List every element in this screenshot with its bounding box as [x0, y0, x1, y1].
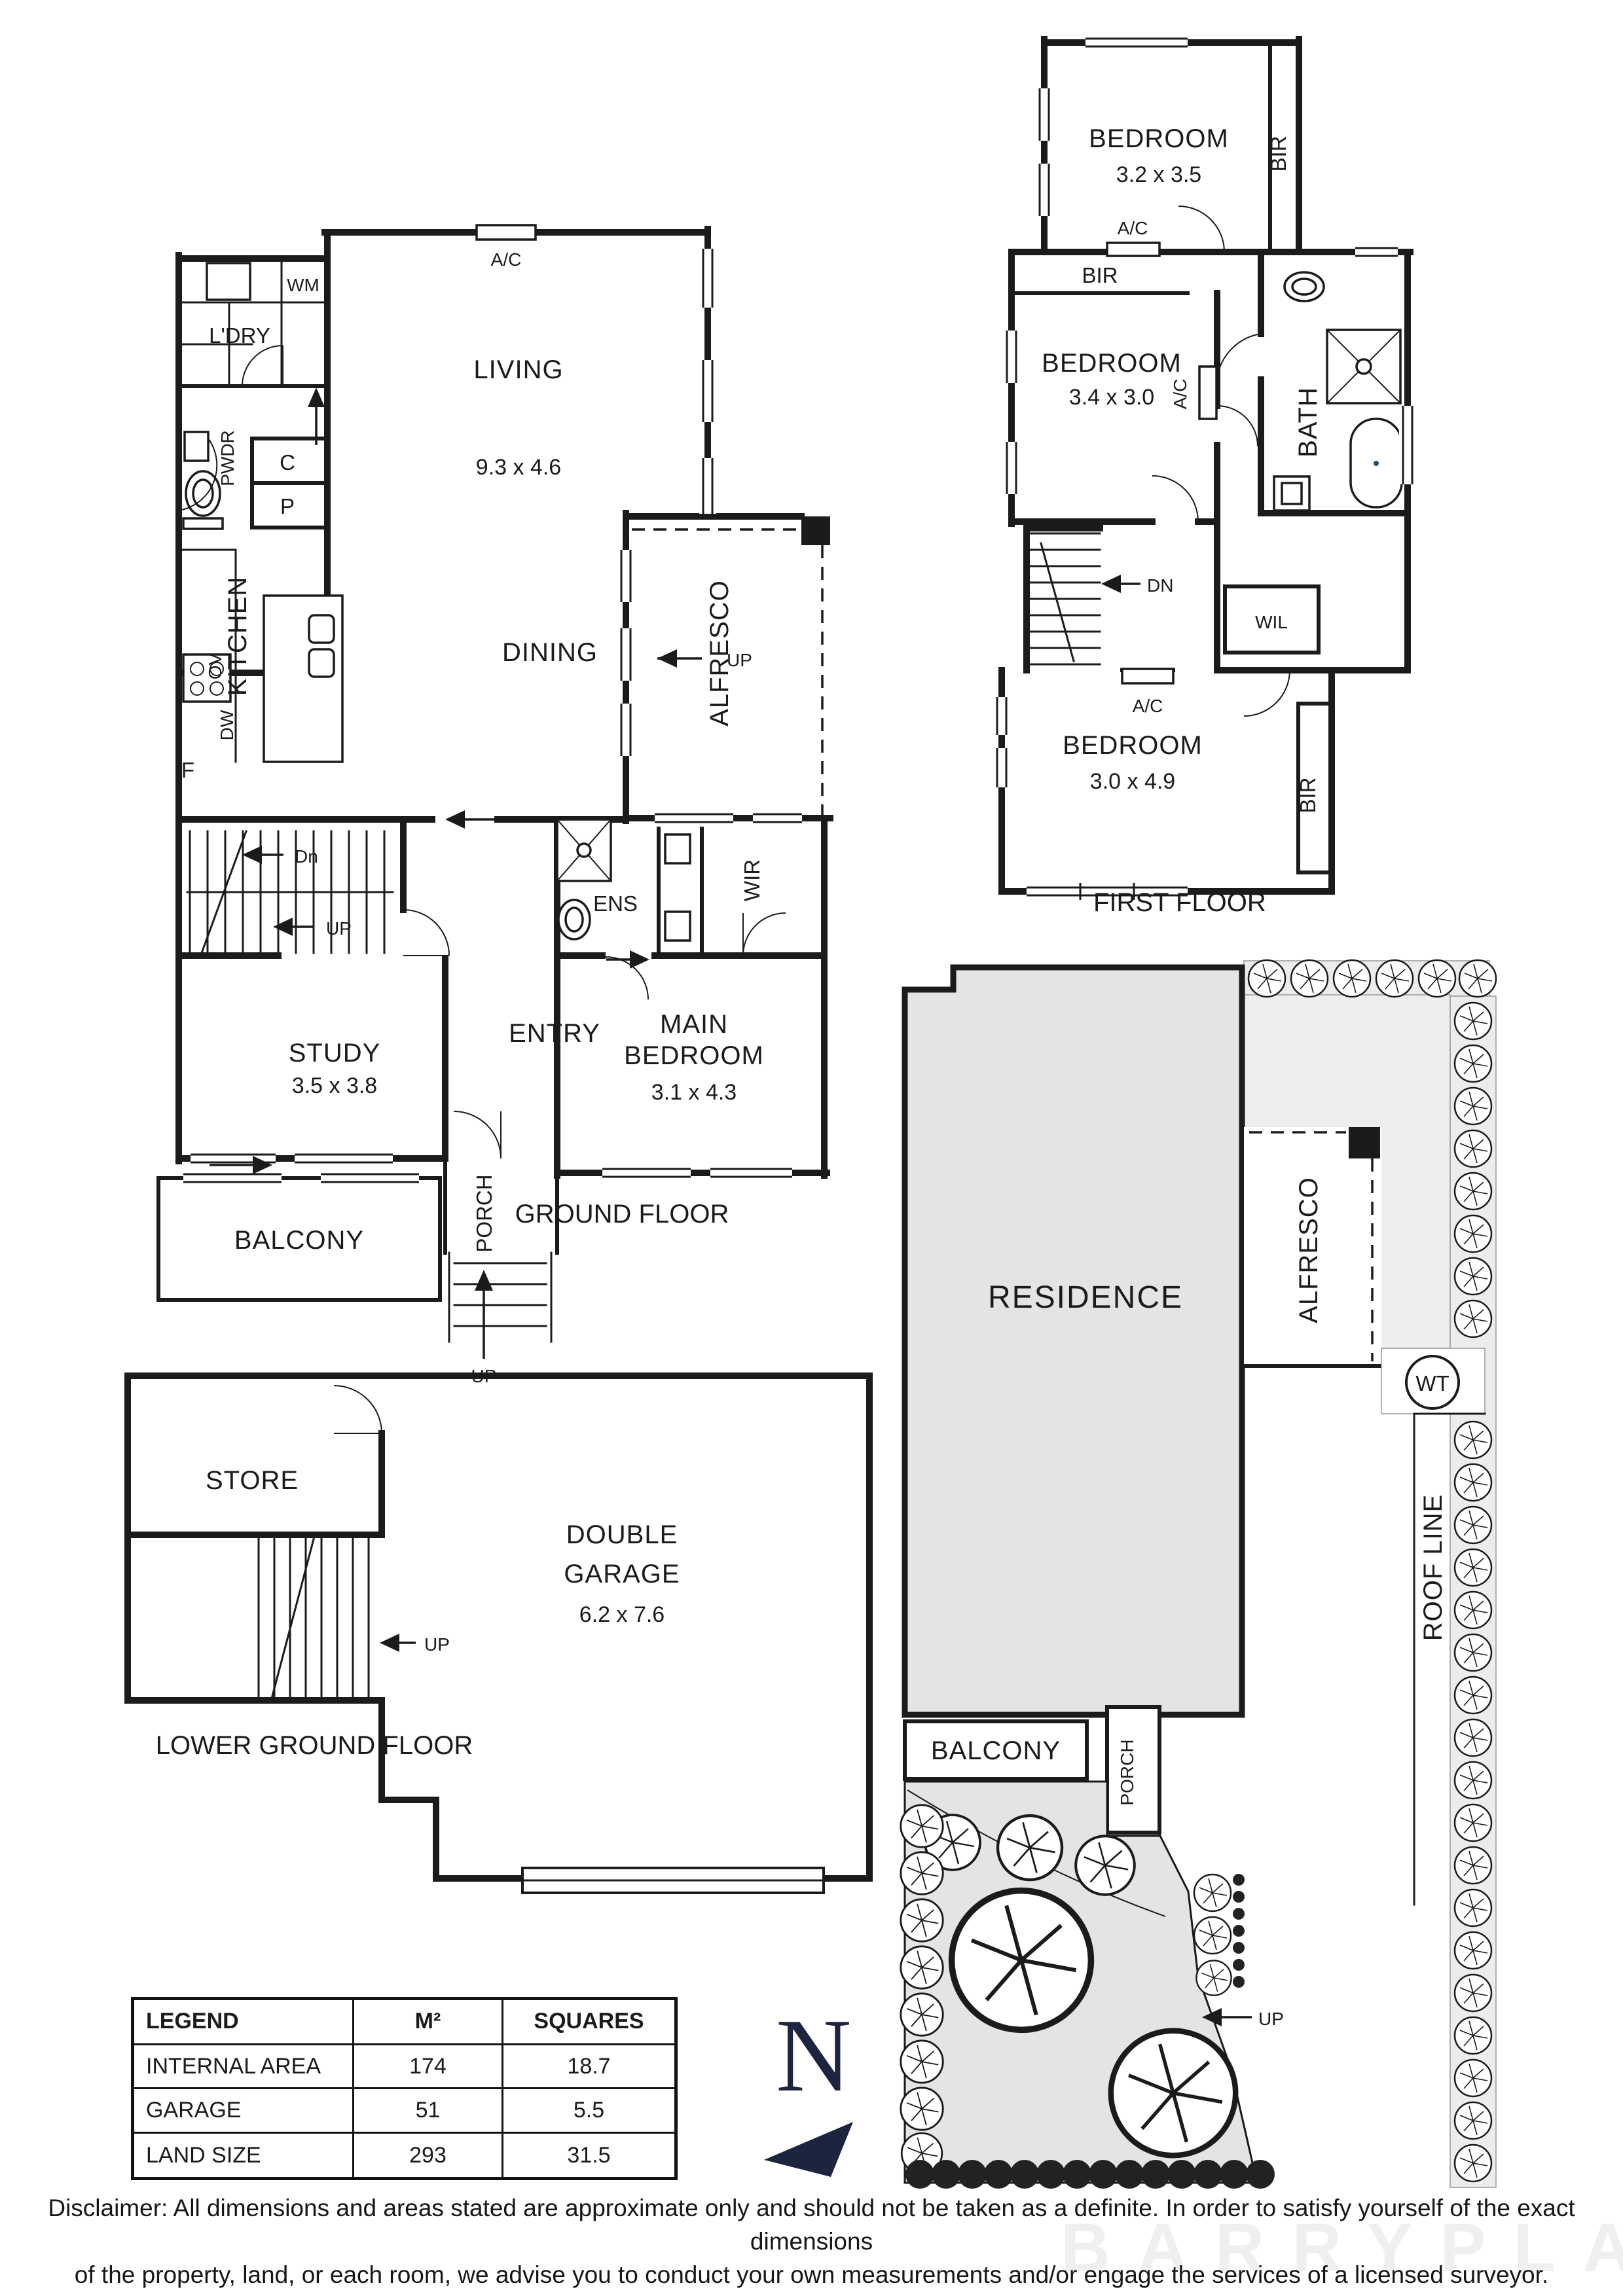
bir-label: BIR	[1082, 263, 1118, 287]
lower-ground-arrows	[380, 1634, 416, 1652]
main-bedroom-label2: BEDROOM	[624, 1041, 764, 1070]
study-label: STUDY	[289, 1039, 381, 1067]
legend-header-name: LEGEND	[133, 1999, 354, 2045]
store-label: STORE	[206, 1466, 299, 1495]
first-floor-arrows	[1101, 575, 1140, 593]
vanity-icon	[665, 912, 690, 941]
first-floor-title: FIRST FLOOR	[1093, 888, 1266, 917]
legend-cell: 51	[354, 2089, 503, 2133]
up-label: UP	[326, 918, 352, 939]
wt-label: WT	[1415, 1371, 1449, 1395]
dining-label: DINING	[502, 638, 598, 667]
dw-label: DW	[217, 709, 237, 740]
ov-label: OV	[205, 653, 225, 679]
bedroom1-dim: 3.2 x 3.5	[1116, 162, 1201, 187]
alfresco-corner-post	[801, 516, 830, 545]
bedroom2-dim: 3.4 x 3.0	[1069, 385, 1154, 410]
laundry-trough-icon	[207, 263, 250, 300]
ground-floor-title: GROUND FLOOR	[515, 1200, 729, 1229]
legend-cell: INTERNAL AREA	[133, 2044, 354, 2089]
wm-label: WM	[287, 275, 319, 295]
legend-cell: 18.7	[503, 2044, 676, 2089]
study-dim: 3.5 x 3.8	[292, 1073, 377, 1098]
legend-cell: GARAGE	[133, 2089, 354, 2133]
alfresco-up-label: UP	[727, 650, 752, 670]
ac-label: A/C	[1118, 218, 1148, 238]
lower-ground-stairs	[259, 1537, 369, 1698]
disclaimer-line1: Disclaimer: All dimensions and areas sta…	[0, 2191, 1623, 2258]
site-porch-label: PORCH	[1117, 1739, 1137, 1805]
p-label: P	[280, 494, 295, 518]
lower-ground-plan: STORE UP DOUBLE GARAGE 6.2 x 7.6 LOWER G…	[118, 1368, 884, 1918]
kitchen-fixtures	[179, 550, 342, 762]
dn-label: DN	[1147, 575, 1173, 596]
site-balcony-label: BALCONY	[931, 1736, 1061, 1765]
bedroom2-label: BEDROOM	[1042, 349, 1182, 378]
legend-cell: 293	[354, 2133, 503, 2179]
residence-label: RESIDENCE	[988, 1280, 1183, 1315]
legend-cell: 5.5	[503, 2089, 676, 2133]
legend-header-row: LEGEND M² SQUARES	[133, 1999, 676, 2045]
ground-floor-plan: WM L'DRY PWDR C P A/C LIVING 9.3 x 4.6 K…	[79, 92, 838, 1394]
legend-row-land: LAND SIZE 293 31.5	[133, 2133, 676, 2179]
ac-label: A/C	[1170, 379, 1190, 410]
main-bedroom-dim: 3.1 x 4.3	[651, 1080, 737, 1105]
legend-header-m2: M²	[354, 1999, 503, 2045]
vanity-icon	[665, 834, 690, 863]
bedroom1-label: BEDROOM	[1089, 124, 1229, 153]
living-label: LIVING	[473, 355, 563, 384]
disclaimer: Disclaimer: All dimensions and areas sta…	[0, 2191, 1623, 2296]
ens-label: ENS	[593, 891, 638, 916]
first-floor-doors	[1152, 206, 1290, 716]
residence-outline	[905, 967, 1242, 1715]
roof-line-label: ROOF LINE	[1419, 1494, 1448, 1641]
dn-label: Dn	[295, 846, 318, 867]
porch-steps	[449, 1253, 551, 1342]
ac-label: A/C	[491, 249, 522, 270]
legend-cell: 31.5	[503, 2133, 676, 2179]
ac-label: A/C	[1133, 696, 1163, 716]
site-plan: RESIDENCE ALFRESCO WT ROOF LINE BALCONY …	[890, 956, 1623, 2199]
bir-label: BIR	[1296, 777, 1320, 813]
lower-ground-walls	[128, 1376, 869, 1878]
disclaimer-line2: of the property, land, or each room, we …	[0, 2258, 1623, 2296]
ac-unit-icon	[1122, 669, 1173, 683]
north-arrow-icon	[761, 2119, 860, 2181]
ac-unit-icon	[1107, 243, 1159, 256]
legend-header-squares: SQUARES	[503, 1999, 676, 2045]
bir-label: BIR	[1266, 135, 1290, 171]
legend-cell: 174	[354, 2044, 503, 2089]
main-bedroom-label1: MAIN	[660, 1010, 728, 1039]
bath-label: BATH	[1294, 387, 1322, 457]
door-arc	[454, 1111, 501, 1158]
balcony-label: BALCONY	[234, 1226, 364, 1255]
garage-label2: GARAGE	[564, 1560, 680, 1588]
bath-fixtures	[1107, 243, 1402, 683]
bedroom3-dim: 3.0 x 4.9	[1090, 769, 1175, 794]
wil-label: WIL	[1255, 612, 1288, 632]
first-floor-plan: BEDROOM 3.2 x 3.5 BIR A/C BIR BEDROOM 3.…	[969, 26, 1467, 942]
ac-unit-icon	[477, 225, 536, 240]
floorplan-page: WM L'DRY PWDR C P A/C LIVING 9.3 x 4.6 K…	[0, 0, 1623, 2296]
garage-door	[522, 1868, 824, 1893]
entry-label: ENTRY	[509, 1019, 600, 1048]
ensuite-fixtures	[403, 819, 786, 1158]
bedroom3-label: BEDROOM	[1063, 731, 1203, 760]
ldry-label: L'DRY	[209, 323, 270, 348]
first-floor-stairs	[1027, 533, 1100, 664]
pwdr-label: PWDR	[217, 430, 238, 486]
lower-ground-title: LOWER GROUND FLOOR	[156, 1731, 473, 1760]
garage-dim: 6.2 x 7.6	[579, 1602, 665, 1627]
north-indicator: N	[776, 2003, 860, 2181]
legend-row-garage: GARAGE 51 5.5	[133, 2089, 676, 2133]
c-label: C	[280, 450, 295, 475]
door-arc	[403, 910, 449, 956]
first-floor-walls	[1002, 39, 1410, 891]
door-arc	[743, 913, 786, 956]
store-door-arc	[334, 1386, 382, 1433]
living-dim: 9.3 x 4.6	[476, 455, 561, 480]
ac-unit-icon	[1199, 367, 1216, 419]
legend-row-internal: INTERNAL AREA 174 18.7	[133, 2044, 676, 2089]
porch-label: PORCH	[472, 1174, 496, 1252]
door-arc	[606, 957, 648, 999]
door-arc	[242, 346, 283, 386]
up-label: UP	[424, 1634, 450, 1655]
legend: LEGEND M² SQUARES INTERNAL AREA 174 18.7…	[131, 1997, 678, 2180]
f-label: F	[181, 758, 194, 782]
north-label: N	[776, 2003, 860, 2108]
kitchen-label: KITCHEN	[223, 577, 252, 696]
garage-label1: DOUBLE	[566, 1520, 678, 1549]
site-up-label: UP	[1258, 2009, 1284, 2029]
wir-label: WIR	[740, 859, 764, 901]
legend-cell: LAND SIZE	[133, 2133, 354, 2179]
powder-basin-icon	[185, 432, 208, 461]
site-alfresco-label: ALFRESCO	[1294, 1177, 1323, 1323]
